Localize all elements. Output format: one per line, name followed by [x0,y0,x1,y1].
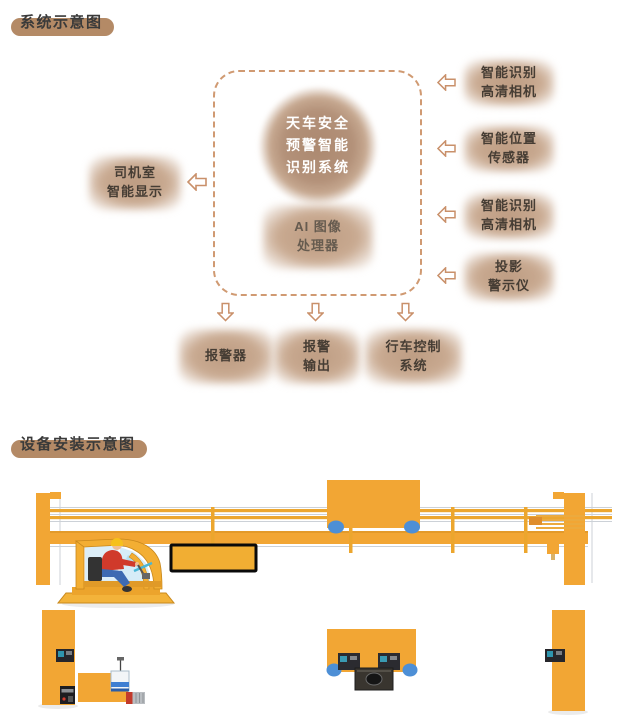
arrow-down-icon [217,302,234,322]
system-core-label-line2: 预警智能 [286,135,350,157]
trolley-wheel [404,521,420,534]
runway-column-left [38,610,78,709]
projector-warning-node: 投影 警示仪 [465,254,553,300]
hd-camera-node-1: 智能识别 高清相机 [465,61,553,105]
arrow-down-icon [397,302,414,322]
cab-display-screen [171,545,256,571]
alarm-output-node: 报警 输出 [275,330,359,383]
crane-trolley [327,480,420,534]
system-core-label-line3: 识别系统 [286,157,350,179]
arrow-left-icon [437,267,456,284]
position-sensor-node: 智能位置 传感器 [465,127,553,171]
alarm-node: 报警器 [180,330,272,383]
hoist-wheel [403,664,418,677]
driver-cabin [58,538,174,608]
cab-display-node: 司机室 智能显示 [90,157,180,209]
hd-camera-node-2: 智能识别 高清相机 [465,194,553,238]
trolley-wheel [328,521,344,534]
camera-device [378,653,400,670]
ground-control-unit [78,657,145,704]
arrow-left-icon [187,173,207,191]
crane-control-node: 行车控制 系统 [366,330,461,383]
installation-diagram-title: 设备安装示意图 [18,433,138,454]
camera-device [60,686,75,704]
arrow-left-icon [437,206,456,223]
hoist-unit [327,629,418,690]
system-core-node: 天车安全 预警智能 识别系统 [258,86,378,206]
runway-column-right [545,610,588,715]
projector-device [355,668,393,690]
camera-device [545,649,565,662]
system-diagram-title: 系统示意图 [18,11,105,32]
arrow-left-icon [437,74,456,91]
arrow-down-icon [307,302,324,322]
operator-seat [88,557,102,581]
position-sensor-device [111,657,129,692]
alarm-device [126,692,145,704]
camera-device [338,653,360,670]
camera-device [56,649,74,662]
arrow-left-icon [437,140,456,157]
system-core-label-line1: 天车安全 [286,113,350,135]
ai-processor-node: AI 图像 处理器 [264,206,372,268]
crane-illustration [0,463,618,719]
